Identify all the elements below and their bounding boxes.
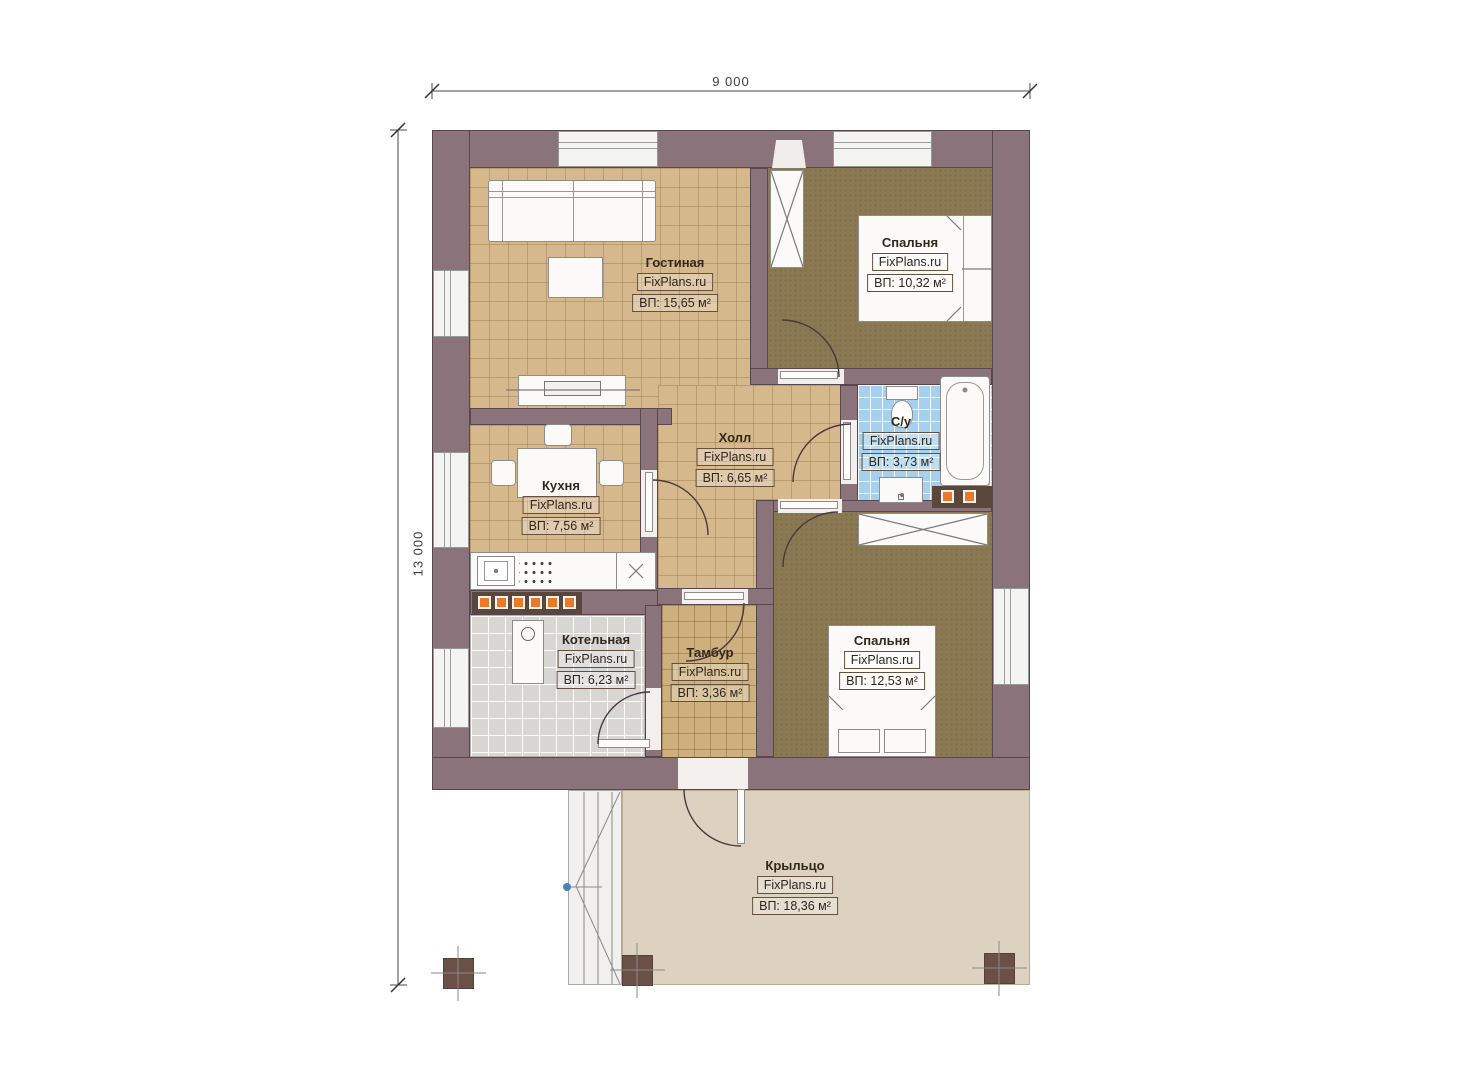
room-area: ВП: 12,53 м² [839, 672, 925, 690]
room-name: Крыльцо [752, 858, 838, 873]
chimney-vent [772, 140, 806, 168]
brand-watermark: FixPlans.ru [697, 448, 774, 466]
room-label-living: Гостиная FixPlans.ru ВП: 15,65 м² [632, 255, 718, 312]
window-right-bedroom2 [993, 588, 1029, 685]
room-name: Спальня [867, 235, 953, 250]
door-opening-entrance [678, 758, 748, 789]
coffee-table [548, 257, 603, 298]
dimension-width-label: 9 000 [681, 74, 781, 89]
dimension-height-label: 13 000 [411, 522, 426, 586]
radiator [932, 486, 992, 508]
brand-watermark: FixPlans.ru [844, 651, 921, 669]
brand-watermark: FixPlans.ru [637, 273, 714, 291]
window-left-living [433, 270, 469, 337]
room-name: Котельная [557, 632, 636, 647]
room-area: ВП: 3,36 м² [671, 684, 750, 702]
wall-outer-top [432, 130, 1030, 168]
room-name: Холл [696, 430, 775, 445]
wardrobe [770, 170, 804, 268]
tv [544, 381, 601, 396]
room-area: ВП: 18,36 м² [752, 897, 838, 915]
porch-stairs [568, 790, 622, 985]
brand-watermark: FixPlans.ru [863, 432, 940, 450]
brand-watermark: FixPlans.ru [523, 496, 600, 514]
room-area: ВП: 10,32 м² [867, 274, 953, 292]
room-label-kitchen: Кухня FixPlans.ru ВП: 7,56 м² [522, 478, 601, 535]
window-top-bedroom1 [833, 131, 932, 167]
radiator [472, 592, 582, 614]
window-left-boiler [433, 648, 469, 728]
room-name: Гостиная [632, 255, 718, 270]
room-label-bedroom1: Спальня FixPlans.ru ВП: 10,32 м² [867, 235, 953, 292]
room-area: ВП: 3,73 м² [862, 453, 941, 471]
room-name: Спальня [839, 633, 925, 648]
column [984, 953, 1015, 984]
appliance-cabinet [616, 552, 656, 590]
bathtub [940, 376, 990, 486]
door-leaf-kitchen [645, 472, 653, 532]
pillow [884, 729, 926, 753]
brand-watermark: FixPlans.ru [672, 663, 749, 681]
wall-living-bedroom1 [750, 168, 768, 385]
chair [491, 460, 516, 486]
chair [544, 424, 572, 446]
door-leaf-bathroom [843, 422, 851, 480]
brand-watermark: FixPlans.ru [872, 253, 949, 271]
door-leaf-bedroom1 [780, 371, 838, 379]
column [622, 955, 653, 986]
door-leaf-boiler [598, 739, 650, 748]
boiler-unit [512, 620, 544, 684]
door-leaf-vestibule [684, 592, 744, 600]
room-area: ВП: 6,65 м² [696, 469, 775, 487]
wall-outer-right [992, 130, 1030, 790]
room-label-bedroom2: Спальня FixPlans.ru ВП: 12,53 м² [839, 633, 925, 690]
column [443, 958, 474, 989]
room-label-bathroom: С/у FixPlans.ru ВП: 3,73 м² [862, 414, 941, 471]
room-area: ВП: 15,65 м² [632, 294, 718, 312]
room-area: ВП: 7,56 м² [522, 517, 601, 535]
sofa [488, 180, 656, 242]
room-name: Кухня [522, 478, 601, 493]
brand-watermark: FixPlans.ru [558, 650, 635, 668]
window-top-living [558, 131, 658, 167]
door-leaf-bedroom2 [780, 501, 838, 509]
stove-burners [519, 556, 555, 586]
window-left-kitchen [433, 452, 469, 548]
chair [599, 460, 624, 486]
brand-watermark: FixPlans.ru [757, 876, 834, 894]
room-label-hall: Холл FixPlans.ru ВП: 6,65 м² [696, 430, 775, 487]
wardrobe [858, 513, 988, 546]
room-name: С/у [862, 414, 941, 429]
wall-vestibule-bedroom2 [756, 500, 774, 757]
toilet-cistern [886, 386, 918, 400]
kitchen-sink [477, 556, 515, 586]
pillow [838, 729, 880, 753]
room-label-boiler: Котельная FixPlans.ru ВП: 6,23 м² [557, 632, 636, 689]
room-name: Тамбур [671, 645, 750, 660]
floor-plan-page: Гостиная FixPlans.ru ВП: 15,65 м² Спальн… [0, 0, 1474, 1080]
room-label-porch: Крыльцо FixPlans.ru ВП: 18,36 м² [752, 858, 838, 915]
room-label-vestibule: Тамбур FixPlans.ru ВП: 3,36 м² [671, 645, 750, 702]
door-leaf-entrance [737, 789, 745, 844]
washbasin [879, 477, 923, 503]
room-area: ВП: 6,23 м² [557, 671, 636, 689]
